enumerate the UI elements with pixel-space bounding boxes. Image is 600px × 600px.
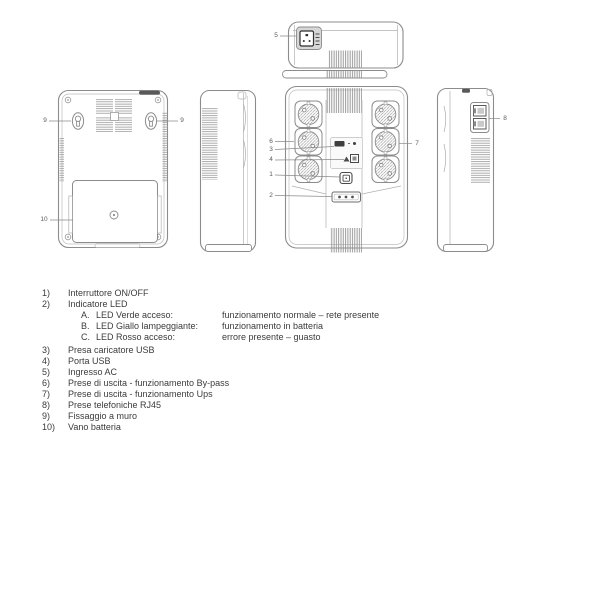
legend-sublabel: LED Verde acceso: (96, 310, 222, 321)
outlet (295, 101, 322, 128)
legend-num: 7) (42, 389, 68, 400)
legend-letter: C. (81, 332, 96, 343)
outlet (372, 129, 399, 156)
legend-desc: funzionamento normale – rete presente (222, 310, 379, 321)
rj45-ports (471, 103, 490, 133)
legend-item-6: 6) Prese di uscita - funzionamento By-pa… (42, 378, 522, 389)
keyhole-right (145, 113, 156, 129)
ac-inlet (297, 27, 322, 50)
callout-ac-inlet: 5 (274, 33, 278, 40)
battery-cover (69, 181, 161, 243)
callout-power-switch: 1 (269, 172, 273, 179)
legend-text: Prese telefoniche RJ45 (68, 400, 522, 411)
side-vent-ribs (202, 108, 218, 180)
front-view (286, 87, 408, 253)
legend-num: 1) (42, 288, 68, 299)
legend-num: 9) (42, 411, 68, 422)
legend-item-1: 1) Interruttore ON/OFF (42, 288, 522, 299)
screw-icon (155, 97, 161, 103)
rear-side-rib-left (60, 138, 65, 182)
legend-item-9: 9) Fissaggio a muro (42, 411, 522, 422)
callout-wall-mount-right: 9 (180, 118, 184, 125)
outlet (372, 156, 399, 183)
legend-item-4: 4) Porta USB (42, 356, 522, 367)
front-top-ribs (326, 88, 362, 113)
legend-text: Presa caricatore USB (68, 345, 522, 356)
top-front-edge (283, 71, 388, 79)
top-vent-ribs (328, 51, 362, 69)
side-foot (444, 245, 488, 252)
manual-page: 5 9 9 10 6 3 4 1 2 7 8 1) Interruttore O… (0, 0, 600, 600)
legend-text: Prese di uscita - funzionamento Ups (68, 389, 522, 400)
ups-diagram (0, 0, 600, 285)
legend-item-2a: A. LED Verde acceso: funzionamento norma… (42, 310, 522, 321)
legend: 1) Interruttore ON/OFF 2) Indicatore LED… (42, 288, 522, 433)
legend-num: 8) (42, 400, 68, 411)
legend-letter: A. (81, 310, 96, 321)
power-button (340, 173, 352, 184)
callout-rj45: 8 (503, 115, 507, 122)
legend-num: 2) (42, 299, 68, 310)
legend-text: Prese di uscita - funzionamento By-pass (68, 378, 522, 389)
legend-num: 10) (42, 422, 68, 433)
legend-sublabel: LED Giallo lampeggiante: (96, 321, 222, 332)
outlet (372, 101, 399, 128)
callout-led-indicator: 2 (269, 192, 273, 199)
rear-view (59, 91, 168, 248)
side-view-right (438, 89, 494, 252)
legend-text: Porta USB (68, 356, 522, 367)
callout-usb-port: 4 (269, 157, 273, 164)
legend-item-5: 5) Ingresso AC (42, 367, 522, 378)
screw-icon (65, 97, 71, 103)
legend-letter: B. (81, 321, 96, 332)
side-view-left (201, 91, 256, 252)
outlet (295, 129, 322, 156)
legend-item-3: 3) Presa caricatore USB (42, 345, 522, 356)
legend-text: Fissaggio a muro (68, 411, 522, 422)
legend-desc: errore presente – guasto (222, 332, 321, 343)
front-bottom-ribs (330, 228, 362, 253)
legend-text: Indicatore LED (68, 299, 522, 310)
rear-top-foot (139, 91, 160, 95)
legend-sublabel: LED Rosso acceso: (96, 332, 222, 343)
legend-item-2: 2) Indicatore LED (42, 299, 522, 310)
callout-usb-charger: 3 (269, 146, 273, 153)
callout-bypass-outlets: 6 (269, 138, 273, 145)
screw-icon (65, 234, 71, 240)
keyhole-left (72, 113, 83, 129)
led-indicator (332, 192, 361, 202)
callout-battery: 10 (40, 217, 47, 224)
legend-num: 5) (42, 367, 68, 378)
legend-text: Interruttore ON/OFF (68, 288, 522, 299)
legend-text: Ingresso AC (68, 367, 522, 378)
legend-item-2c: C. LED Rosso acceso: errore presente – g… (42, 332, 522, 343)
legend-item-10: 10) Vano batteria (42, 422, 522, 433)
legend-item-7: 7) Prese di uscita - funzionamento Ups (42, 389, 522, 400)
legend-num: 4) (42, 356, 68, 367)
ups-outlets (372, 101, 399, 183)
side-vent-ribs-right (471, 137, 490, 183)
bypass-outlets (295, 101, 322, 183)
legend-num: 6) (42, 378, 68, 389)
legend-item-2b: B. LED Giallo lampeggiante: funzionament… (42, 321, 522, 332)
rear-side-rib-right (163, 112, 168, 182)
top-view (283, 22, 404, 78)
callout-wall-mount-left: 9 (43, 118, 47, 125)
legend-num: 3) (42, 345, 68, 356)
side-foot (206, 245, 252, 252)
legend-item-8: 8) Prese telefoniche RJ45 (42, 400, 522, 411)
legend-text: Vano batteria (68, 422, 522, 433)
callout-ups-outlets: 7 (415, 140, 419, 147)
legend-desc: funzionamento in batteria (222, 321, 323, 332)
